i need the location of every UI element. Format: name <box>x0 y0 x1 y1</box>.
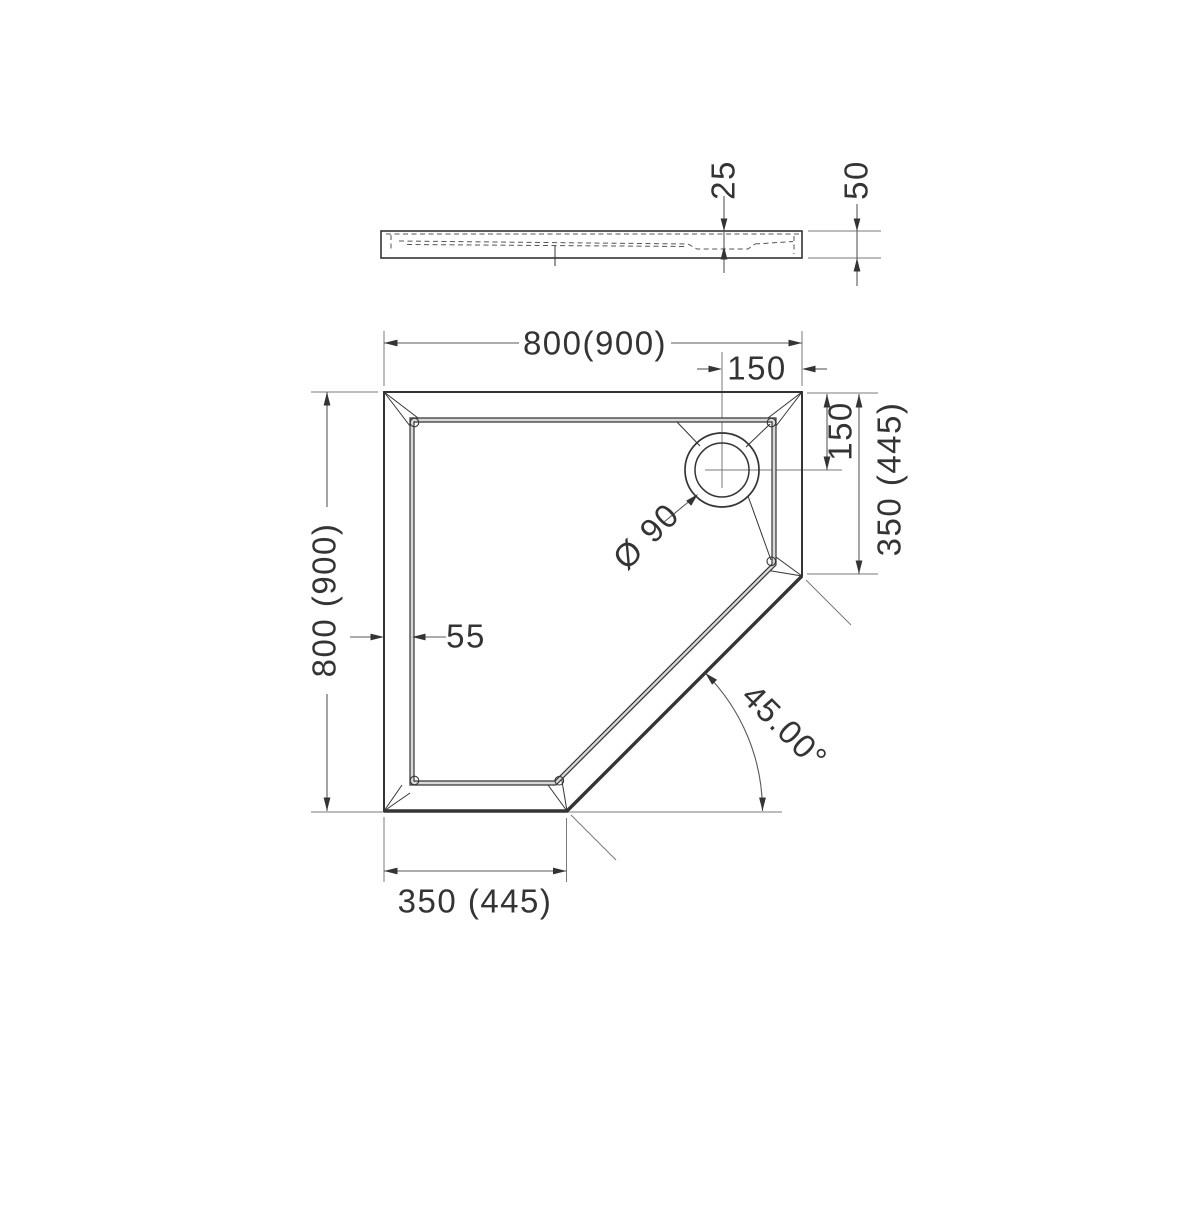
dimension-drain-offset-y: 150 <box>822 394 859 470</box>
arrow-drainx-left <box>709 366 723 373</box>
dimension-overall-height: 50 <box>808 160 881 286</box>
ext-diagonal-right-corner <box>806 580 851 625</box>
arrow-rightedge-bottom <box>856 561 863 575</box>
side-floor-slope-line-2 <box>407 245 686 247</box>
arrow-bottomedge-left <box>384 868 398 875</box>
arrow-widthtop-right <box>789 340 803 347</box>
dimension-bottom-edge: 350 (445) <box>384 868 567 920</box>
arrow-rightedge-top <box>856 394 863 408</box>
dimension-rim-width: 55 <box>350 618 486 655</box>
label-height-left: 800 (900) <box>306 523 343 678</box>
technical-drawing-page: 25 50 <box>0 0 1200 1200</box>
label-recess-depth: 25 <box>705 160 742 200</box>
side-floor-slope-line <box>399 241 688 244</box>
arrow-heightleft-top <box>324 392 331 406</box>
arrow-50-up <box>854 258 861 272</box>
rim-inner-step-shading <box>412 420 774 783</box>
dimension-drain-offset-x: 150 <box>697 350 827 387</box>
callout-drain-diameter: Ø 90 <box>606 494 698 576</box>
ext-diagonal-bottom-corner <box>571 815 616 860</box>
rim-inner-edge-inner <box>414 422 772 781</box>
label-overall-height: 50 <box>838 160 875 200</box>
arrow-drainx-right <box>802 366 816 373</box>
dimension-height-left: 800 (900) <box>306 392 343 811</box>
arrow-heightleft-bottom <box>324 798 331 812</box>
side-floor-slope-line-right <box>755 242 793 245</box>
dimension-corner-angle: 45.00° <box>705 673 835 811</box>
tray-outer-outline-bold-edges <box>384 576 802 811</box>
label-bottom-edge: 350 (445) <box>398 883 553 920</box>
label-rim-width: 55 <box>446 618 486 655</box>
label-drain-diameter: Ø 90 <box>606 496 687 577</box>
arrow-rim-left <box>371 634 385 641</box>
arrow-50-down <box>854 219 861 232</box>
arrow-angle-bottom <box>759 798 766 812</box>
label-drain-offset-y: 150 <box>822 401 859 461</box>
dimension-recess-depth: 25 <box>705 160 742 273</box>
arrow-widthtop-left <box>384 340 398 347</box>
side-view: 25 50 <box>381 160 881 286</box>
dimension-right-edge: 350 (445) <box>856 394 908 574</box>
arrow-25-up <box>721 246 728 260</box>
arrow-drain-leader <box>686 494 698 506</box>
label-width-top: 800(900) <box>523 325 667 362</box>
label-corner-angle: 45.00° <box>735 677 835 777</box>
shower-tray-drawing: 25 50 <box>0 0 1200 1200</box>
arrow-bottomedge-right <box>553 868 567 875</box>
plan-view: 800(900) 150 150 350 (445) <box>306 325 908 920</box>
rim-inner-edge-outer <box>410 418 776 785</box>
arrow-25-down <box>721 219 728 232</box>
label-right-edge: 350 (445) <box>871 402 908 557</box>
side-drain-recess-outline <box>688 244 755 249</box>
label-drain-offset-x: 150 <box>727 350 787 387</box>
